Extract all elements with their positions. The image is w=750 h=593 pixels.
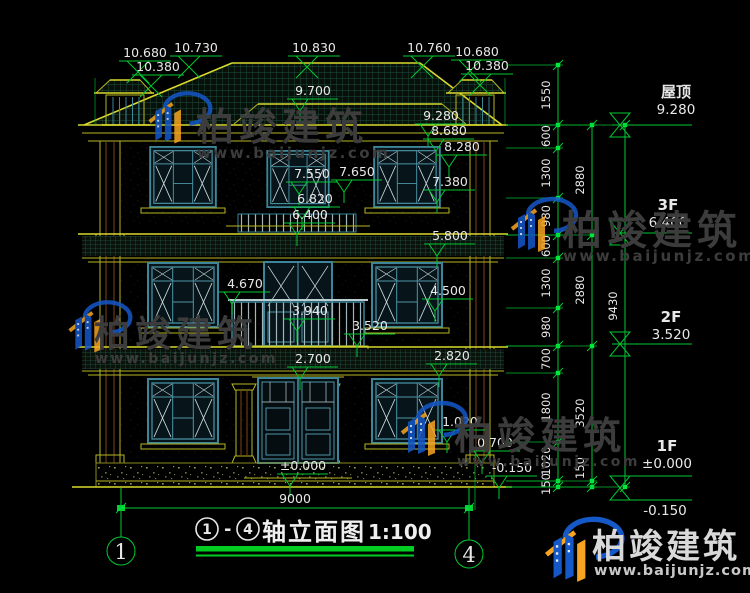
drawing-title: 1 - 4 轴立面图 1:100: [196, 518, 432, 557]
watermark-brand: 柏竣建筑: [196, 105, 368, 149]
dim-text: 10.380: [136, 59, 180, 74]
dim-text: 9.280: [657, 102, 696, 118]
floor-flag: -0.150: [612, 500, 692, 519]
elevation-drawing: 10.68010.38010.73010.83010.76010.68010.3…: [0, 0, 750, 593]
entrance-door: [252, 377, 344, 463]
dim-text: 6.820: [297, 191, 333, 206]
dim-text: 7.650: [339, 164, 375, 179]
cad-canvas: 10.68010.38010.73010.83010.76010.68010.3…: [0, 0, 750, 593]
dim-text: 7.380: [432, 174, 468, 189]
dim-text: 10.680: [123, 45, 167, 60]
dim-text: 980: [539, 316, 553, 338]
dim-text: 150: [539, 473, 553, 495]
title-axis-to: 4: [243, 522, 253, 538]
dim-text: 10.380: [465, 58, 509, 73]
dim-text: 8.680: [431, 123, 467, 138]
dim-text: 1300: [539, 158, 553, 187]
dim-text: 2880: [573, 165, 587, 194]
dim-text: 10.760: [407, 40, 451, 55]
title-underline: [196, 546, 414, 552]
dim-text: 9430: [606, 291, 620, 320]
title-text: 轴立面图: [262, 518, 366, 546]
dim-text: 2.820: [434, 348, 470, 363]
title-scale: 1:100: [368, 520, 432, 544]
dim-text: 7.550: [294, 166, 330, 181]
dim-9000: 9000: [279, 491, 311, 506]
title-axis-from: 1: [202, 522, 212, 538]
dim-text: 5.800: [432, 228, 468, 243]
dim-text: 10.680: [455, 44, 499, 59]
dim-text: 3.520: [352, 318, 388, 333]
watermark-url: www.baijunjz.com: [95, 351, 278, 367]
dim-text: 10.730: [174, 40, 218, 55]
axis-number: 1: [114, 540, 127, 564]
dim-text: 700: [539, 348, 553, 370]
dim-text: 1300: [539, 268, 553, 297]
dim-text: 600: [539, 125, 553, 147]
watermark-brand: 柏竣建筑: [94, 314, 258, 355]
dim-text: 9.280: [423, 108, 459, 123]
brand-logo-block: 柏竣建筑 www.baijunjz.com: [546, 519, 750, 581]
dim-text: 2.700: [295, 351, 331, 366]
title-dash: -: [224, 519, 231, 540]
dim-text: ±0.000: [280, 458, 326, 473]
watermark-url: www.baijunjz.com: [457, 454, 640, 470]
dim-text: 2880: [573, 275, 587, 304]
dim-text: ±0.000: [642, 456, 692, 472]
dim-text: 10.830: [292, 40, 336, 55]
floor-flag: 2F3.520: [610, 308, 692, 356]
watermark-url: www.baijunjz.com: [197, 144, 390, 162]
dim-text: 4.670: [227, 276, 263, 291]
brand-url: www.baijunjz.com: [594, 563, 750, 579]
dim-text: 6.400: [292, 207, 328, 222]
dim-text: -0.150: [643, 503, 687, 519]
dim-text: 3.940: [292, 303, 328, 318]
dim-text: 2F: [661, 308, 682, 326]
dim-text: 8.280: [444, 139, 480, 154]
window-1f-left: [148, 379, 218, 443]
axis-bubble-left: 1: [107, 537, 135, 565]
floor-flag: 屋顶9.280: [610, 83, 695, 137]
axis-number: 4: [462, 543, 475, 567]
dim-text: 1F: [657, 437, 678, 455]
brand-name: 柏竣建筑: [592, 527, 740, 567]
dim-text: 4.500: [430, 283, 466, 298]
watermark-brand: 柏竣建筑: [454, 414, 626, 458]
dim-text: 9.700: [295, 83, 331, 98]
watermark-url: www.baijunjz.com: [563, 247, 750, 265]
dim-text: 1550: [539, 80, 553, 109]
axis-bubble-right: 4: [455, 540, 483, 568]
title-underline-thin: [196, 555, 414, 557]
dim-text: 3.520: [652, 327, 691, 343]
dim-text: 屋顶: [661, 83, 691, 101]
